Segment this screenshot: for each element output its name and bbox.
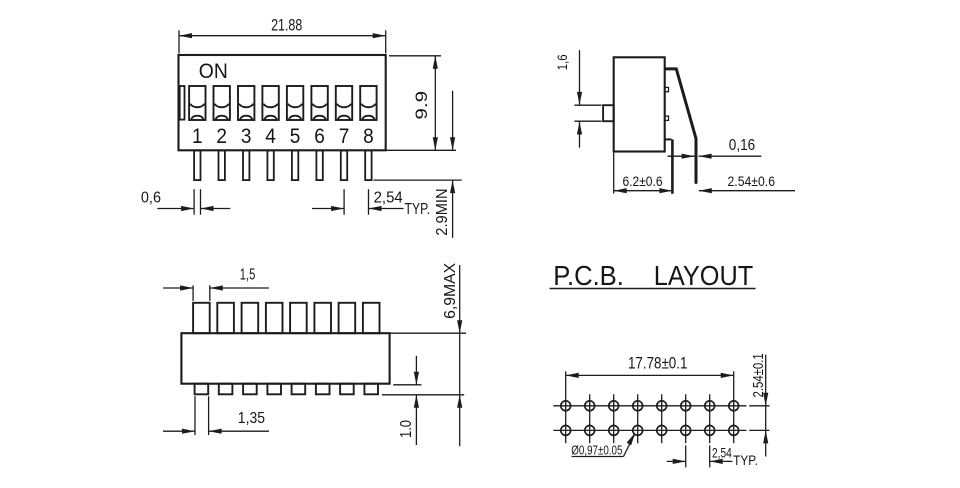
svg-text:9.9: 9.9 bbox=[412, 91, 431, 120]
svg-text:P.C.B.: P.C.B. bbox=[553, 260, 624, 291]
svg-text:7: 7 bbox=[339, 125, 350, 148]
svg-text:2: 2 bbox=[216, 125, 227, 148]
svg-text:2,54: 2,54 bbox=[712, 446, 732, 461]
svg-text:LAYOUT: LAYOUT bbox=[654, 260, 753, 291]
svg-text:1,5: 1,5 bbox=[240, 267, 256, 284]
svg-text:6,9MAX: 6,9MAX bbox=[442, 263, 459, 319]
svg-text:17.78±0.1: 17.78±0.1 bbox=[628, 354, 687, 373]
svg-text:4: 4 bbox=[265, 125, 276, 148]
svg-text:2.54±0.6: 2.54±0.6 bbox=[728, 173, 776, 189]
svg-text:1,35: 1,35 bbox=[238, 410, 265, 427]
svg-text:TYP.: TYP. bbox=[405, 201, 431, 218]
svg-text:2.9MIN: 2.9MIN bbox=[434, 188, 451, 235]
svg-text:3: 3 bbox=[241, 125, 252, 148]
svg-text:6.2±0.6: 6.2±0.6 bbox=[623, 173, 663, 189]
svg-text:2.54±0.1: 2.54±0.1 bbox=[751, 353, 767, 397]
svg-text:1.0: 1.0 bbox=[398, 420, 415, 438]
svg-text:6: 6 bbox=[314, 125, 325, 148]
svg-text:5: 5 bbox=[290, 125, 301, 148]
svg-text:Ø0,97±0.05: Ø0,97±0.05 bbox=[571, 443, 622, 457]
svg-text:ON: ON bbox=[199, 60, 228, 83]
svg-text:2,54: 2,54 bbox=[374, 190, 403, 207]
svg-text:TYP.: TYP. bbox=[733, 453, 758, 468]
svg-text:0,16: 0,16 bbox=[729, 137, 755, 154]
svg-text:21.88: 21.88 bbox=[271, 15, 302, 34]
svg-text:1,6: 1,6 bbox=[555, 54, 570, 70]
svg-text:1: 1 bbox=[192, 125, 203, 148]
svg-text:8: 8 bbox=[363, 125, 374, 148]
svg-text:0,6: 0,6 bbox=[141, 190, 161, 207]
